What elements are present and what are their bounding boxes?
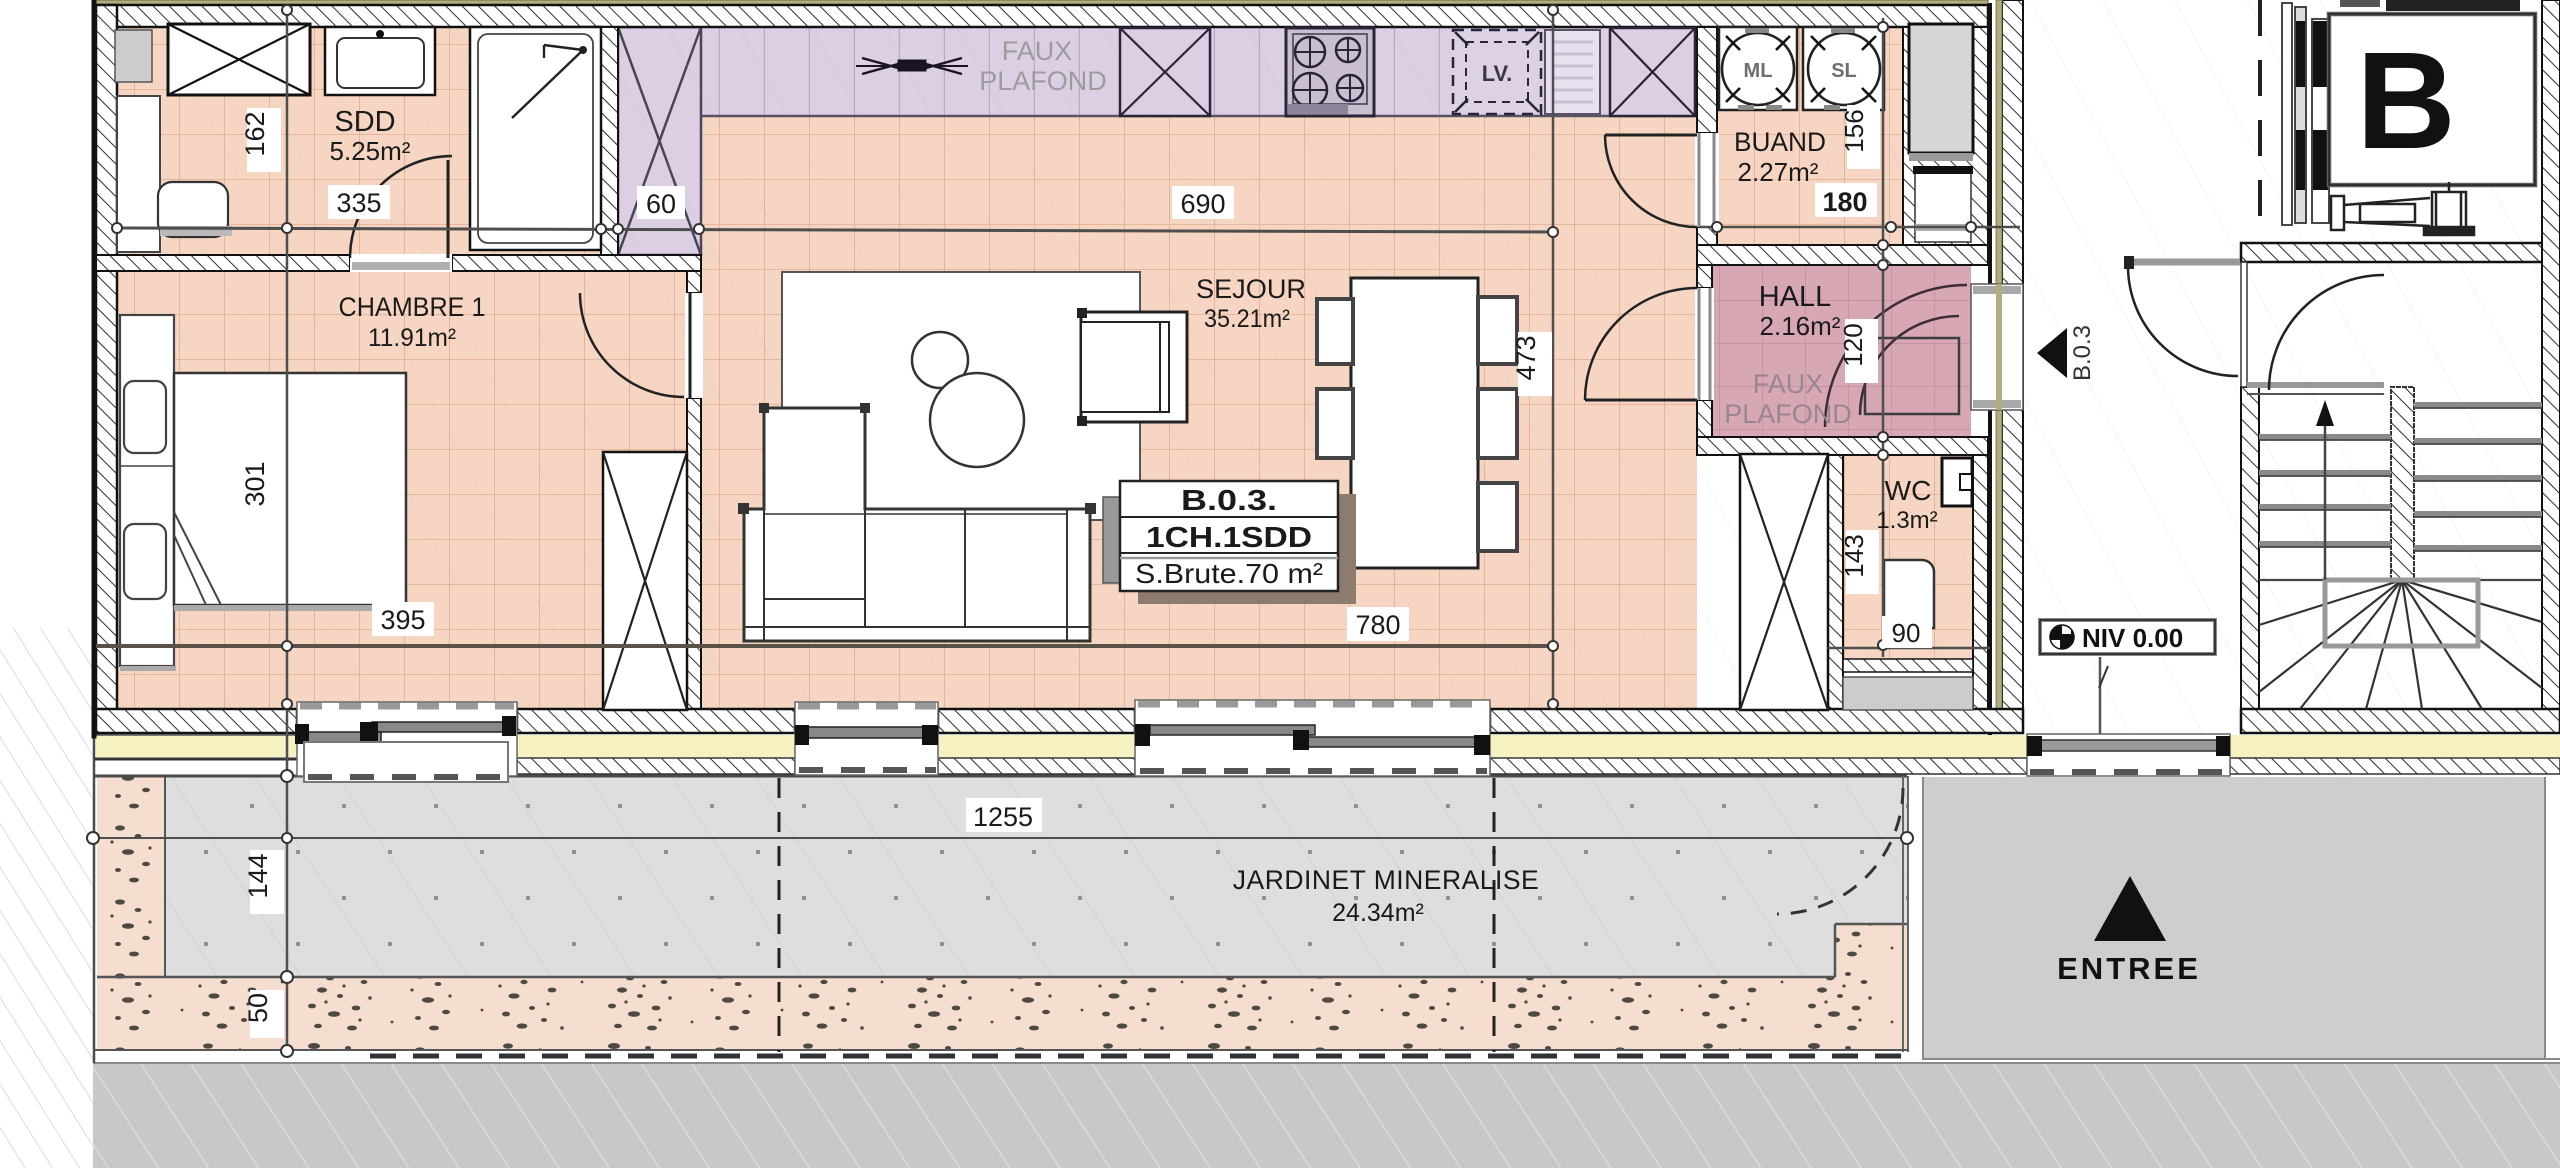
svg-text:156: 156 [1839, 109, 1869, 152]
svg-text:NIV 0.00: NIV 0.00 [2082, 623, 2183, 653]
svg-text:144: 144 [243, 853, 273, 898]
svg-text:HALL: HALL [1759, 281, 1832, 313]
svg-text:473: 473 [1511, 335, 1541, 380]
svg-text:143: 143 [1839, 534, 1869, 577]
svg-text:2.16m²: 2.16m² [1760, 311, 1841, 341]
svg-text:5.25m²: 5.25m² [330, 136, 411, 166]
svg-text:WC: WC [1885, 475, 1932, 506]
svg-text:PLAFOND: PLAFOND [1724, 399, 1852, 429]
svg-text:90: 90 [1892, 618, 1921, 648]
svg-text:ENTREE: ENTREE [2057, 951, 2201, 986]
svg-text:1.3m²: 1.3m² [1876, 507, 1937, 534]
svg-text:50: 50 [243, 993, 273, 1023]
svg-text:690: 690 [1180, 189, 1225, 219]
svg-text:FAUX: FAUX [1002, 36, 1073, 66]
svg-text:S.Brute.70 m²: S.Brute.70 m² [1135, 558, 1323, 589]
svg-text:24.34m²: 24.34m² [1332, 899, 1424, 927]
svg-text:35.21m²: 35.21m² [1204, 305, 1290, 333]
svg-text:60: 60 [646, 189, 676, 219]
svg-text:SDD: SDD [334, 106, 395, 138]
svg-text:PLAFOND: PLAFOND [979, 66, 1107, 96]
svg-text:395: 395 [380, 605, 425, 635]
svg-text:1255: 1255 [973, 802, 1033, 832]
svg-text:LV.: LV. [1482, 61, 1513, 86]
svg-text:335: 335 [336, 188, 381, 218]
svg-text:780: 780 [1355, 610, 1400, 640]
svg-text:180: 180 [1822, 187, 1867, 217]
svg-text:B.0.3.: B.0.3. [1181, 485, 1277, 517]
svg-text:SL: SL [1831, 60, 1857, 82]
svg-text:120: 120 [1838, 323, 1868, 366]
svg-text:2.27m²: 2.27m² [1738, 157, 1819, 187]
svg-text:FAUX: FAUX [1753, 369, 1824, 399]
svg-text:11.91m²: 11.91m² [368, 324, 456, 352]
svg-text:ML: ML [1744, 60, 1773, 82]
svg-text:BUAND: BUAND [1734, 127, 1826, 157]
svg-text:JARDINET MINERALISE: JARDINET MINERALISE [1233, 865, 1539, 895]
svg-text:CHAMBRE 1: CHAMBRE 1 [339, 292, 486, 322]
svg-text:SEJOUR: SEJOUR [1196, 274, 1306, 304]
svg-text:301: 301 [240, 461, 270, 506]
svg-text:1CH.1SDD: 1CH.1SDD [1146, 522, 1312, 554]
svg-text:B.0.3: B.0.3 [2069, 325, 2096, 381]
svg-text:162: 162 [240, 111, 270, 156]
svg-text:B: B [2356, 24, 2456, 178]
